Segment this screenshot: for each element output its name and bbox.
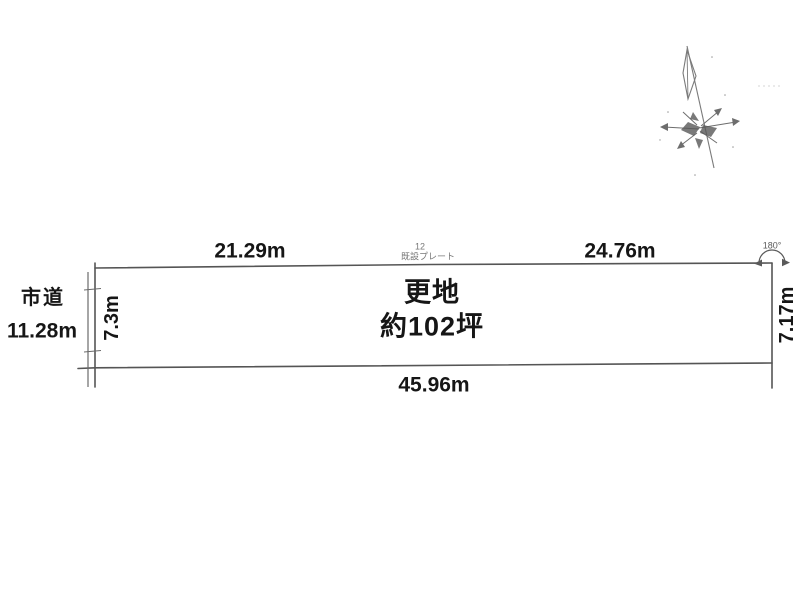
compass-north-icon — [659, 46, 782, 176]
dimension-bottom: 45.96m — [398, 375, 469, 396]
dimension-top-right: 24.76m — [584, 241, 655, 262]
plot-diagram: 21.29m 24.76m 45.96m 7.3m 7.17m 更地 約102坪… — [0, 0, 800, 600]
marker-number-label: 12 — [415, 243, 425, 252]
dimension-top-left: 21.29m — [214, 241, 285, 262]
road-name-label: 市道 — [21, 288, 65, 308]
land-use-label: 更地 — [404, 280, 460, 307]
dimension-left: 7.3m — [102, 295, 122, 341]
road-edge-line — [84, 272, 101, 387]
plot-top-boundary — [95, 263, 772, 268]
marker-name-label: 既設プレート — [401, 253, 455, 262]
road-width-label: 11.28m — [7, 321, 77, 342]
land-area-label: 約102坪 — [380, 314, 484, 341]
corner-angle-label: 180° — [763, 242, 782, 251]
dimension-right: 7.17m — [777, 287, 797, 344]
plot-bottom-boundary — [78, 363, 772, 369]
